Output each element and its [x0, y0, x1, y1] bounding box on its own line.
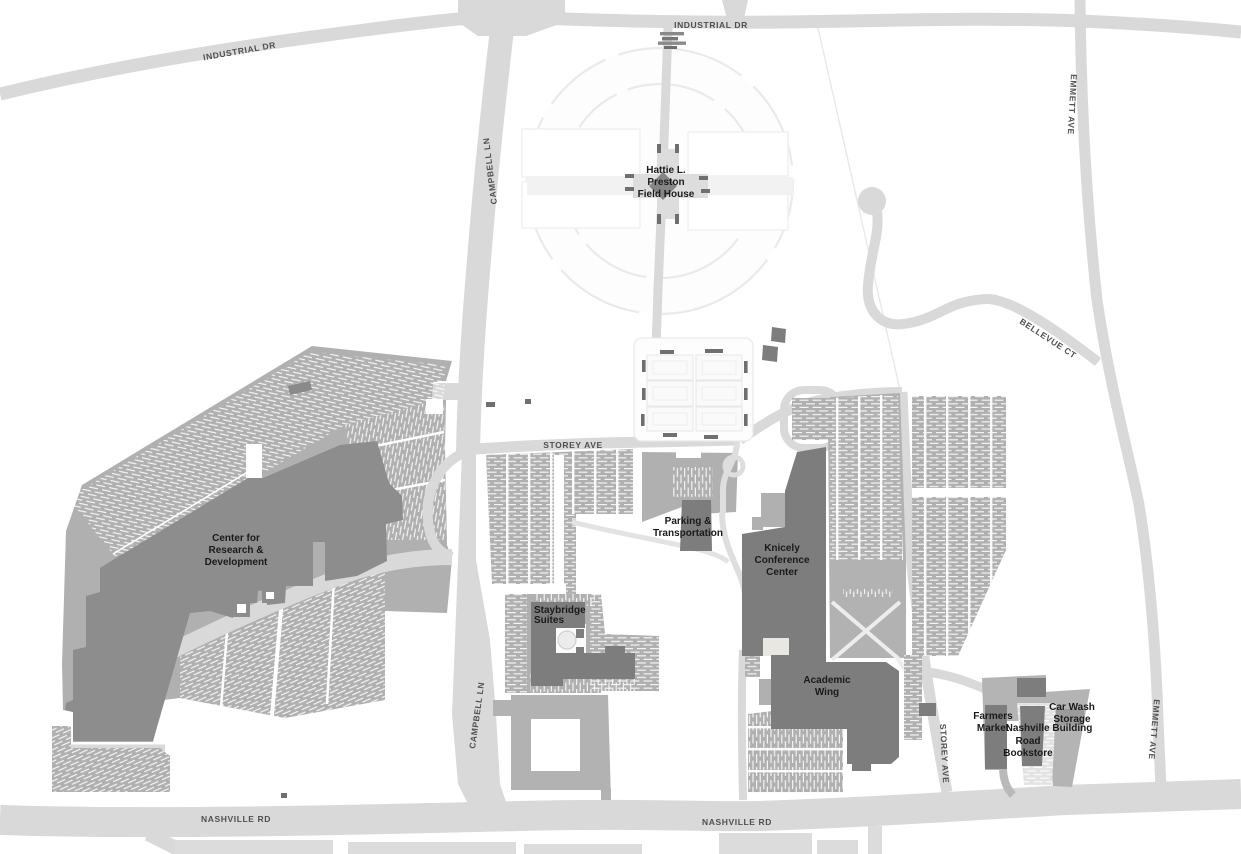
svg-text:Research &: Research &: [208, 545, 263, 556]
svg-text:Knicely: Knicely: [764, 543, 800, 554]
svg-text:Storage: Storage: [1053, 714, 1091, 725]
svg-text:Hattie L.: Hattie L.: [646, 165, 686, 176]
svg-text:Parking &: Parking &: [665, 516, 712, 527]
svg-text:NASHVILLE RD: NASHVILLE RD: [201, 814, 271, 824]
svg-text:Road: Road: [1016, 736, 1041, 747]
svg-text:STOREY AVE: STOREY AVE: [543, 440, 603, 450]
svg-text:Wing: Wing: [815, 687, 839, 698]
svg-text:Transportation: Transportation: [653, 528, 723, 539]
svg-text:Suites: Suites: [534, 615, 564, 626]
svg-text:Academic: Academic: [803, 675, 851, 686]
svg-text:Center: Center: [766, 567, 798, 578]
svg-text:Car Wash: Car Wash: [1049, 702, 1095, 713]
svg-text:Preston: Preston: [647, 177, 684, 188]
svg-text:Bookstore: Bookstore: [1003, 748, 1053, 759]
svg-text:Center for: Center for: [212, 533, 260, 544]
svg-text:INDUSTRIAL DR: INDUSTRIAL DR: [674, 20, 748, 30]
svg-text:Conference: Conference: [754, 555, 809, 566]
svg-text:Development: Development: [205, 557, 268, 568]
svg-text:Farmers: Farmers: [973, 711, 1013, 722]
svg-text:NASHVILLE RD: NASHVILLE RD: [702, 817, 772, 827]
svg-text:Field House: Field House: [638, 189, 695, 200]
